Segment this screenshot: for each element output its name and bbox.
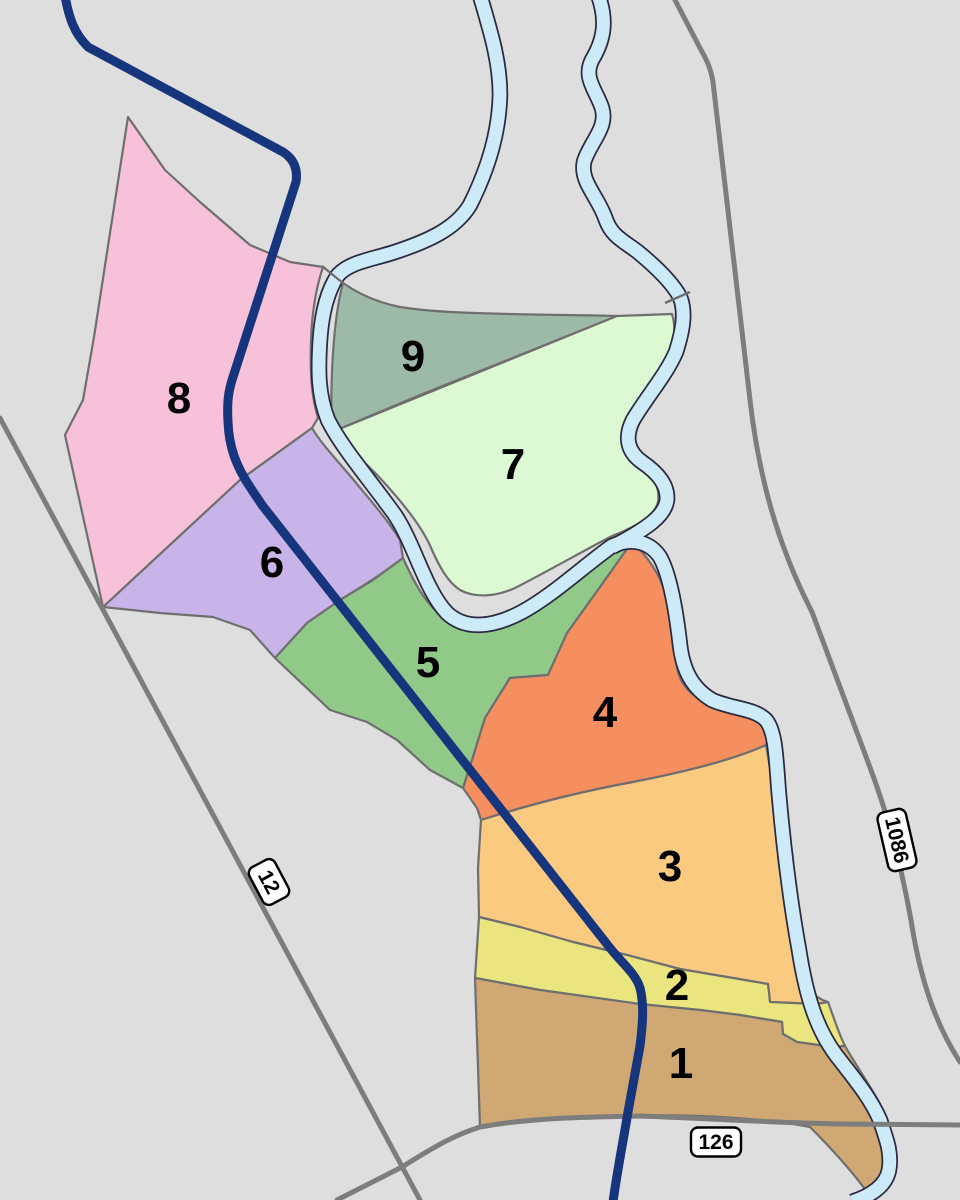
route-shield-126: 126 [691, 1128, 741, 1157]
region-2-label: 2 [665, 961, 689, 1010]
region-8-label: 8 [167, 374, 191, 423]
region-1-label: 1 [669, 1039, 693, 1088]
district-map: 12 1086 126 8 9 7 6 5 4 3 2 1 [0, 0, 960, 1200]
region-6-label: 6 [260, 538, 284, 587]
region-3-label: 3 [658, 842, 682, 891]
region-7-label: 7 [501, 440, 525, 489]
map-canvas: 12 1086 126 8 9 7 6 5 4 3 2 1 [0, 0, 960, 1200]
region-9-label: 9 [401, 332, 425, 381]
region-5-label: 5 [416, 638, 440, 687]
route-shield-126-label: 126 [698, 1131, 733, 1154]
region-4-label: 4 [593, 688, 618, 737]
